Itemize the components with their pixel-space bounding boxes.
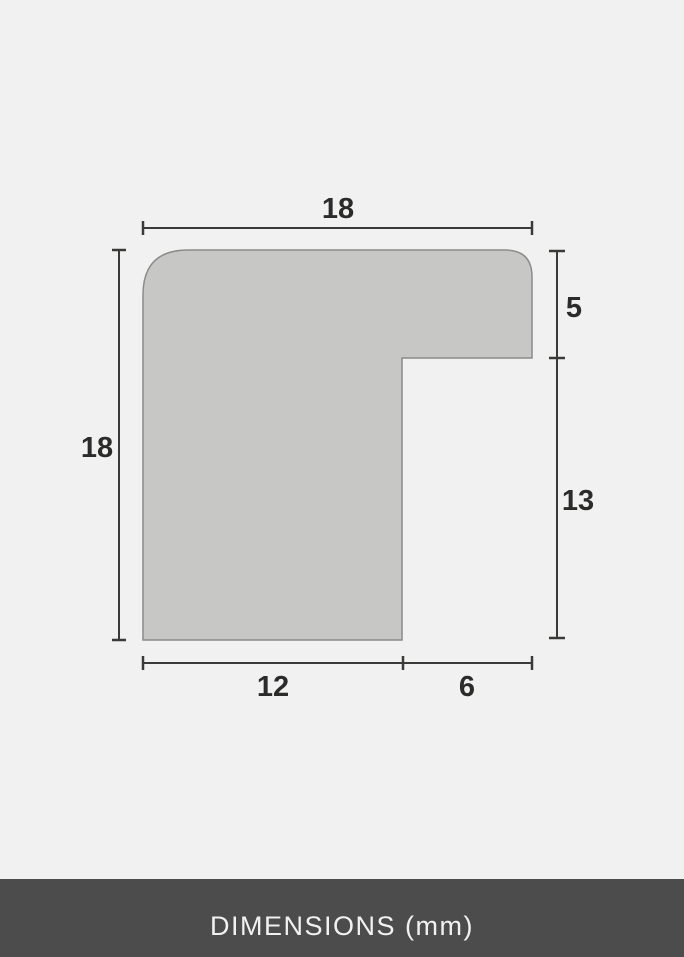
dimension-label-bottom-outer: 6 xyxy=(459,671,475,703)
dimension-bottom: 12 6 xyxy=(143,656,532,703)
dimension-label-bottom-inner: 12 xyxy=(257,671,289,703)
dimension-right-side: 5 13 xyxy=(549,251,594,638)
dimensions-footer-label: DIMENSIONS (mm) xyxy=(210,911,474,942)
profile-dimension-drawing: 18 18 5 13 xyxy=(0,0,684,879)
dimension-top-width: 18 xyxy=(143,193,532,235)
dimension-label-right-upper: 5 xyxy=(566,292,582,324)
dimension-label-right-lower: 13 xyxy=(562,485,594,517)
dimension-left-height: 18 xyxy=(81,250,126,640)
frame-profile-diagram: 18 18 5 13 xyxy=(0,0,684,879)
frame-profile-shape xyxy=(143,250,532,640)
dimensions-footer-bar: DIMENSIONS (mm) xyxy=(0,879,684,957)
dimension-label-top-width: 18 xyxy=(322,193,354,225)
page: 18 18 5 13 xyxy=(0,0,684,957)
dimension-label-left-height: 18 xyxy=(81,432,113,464)
